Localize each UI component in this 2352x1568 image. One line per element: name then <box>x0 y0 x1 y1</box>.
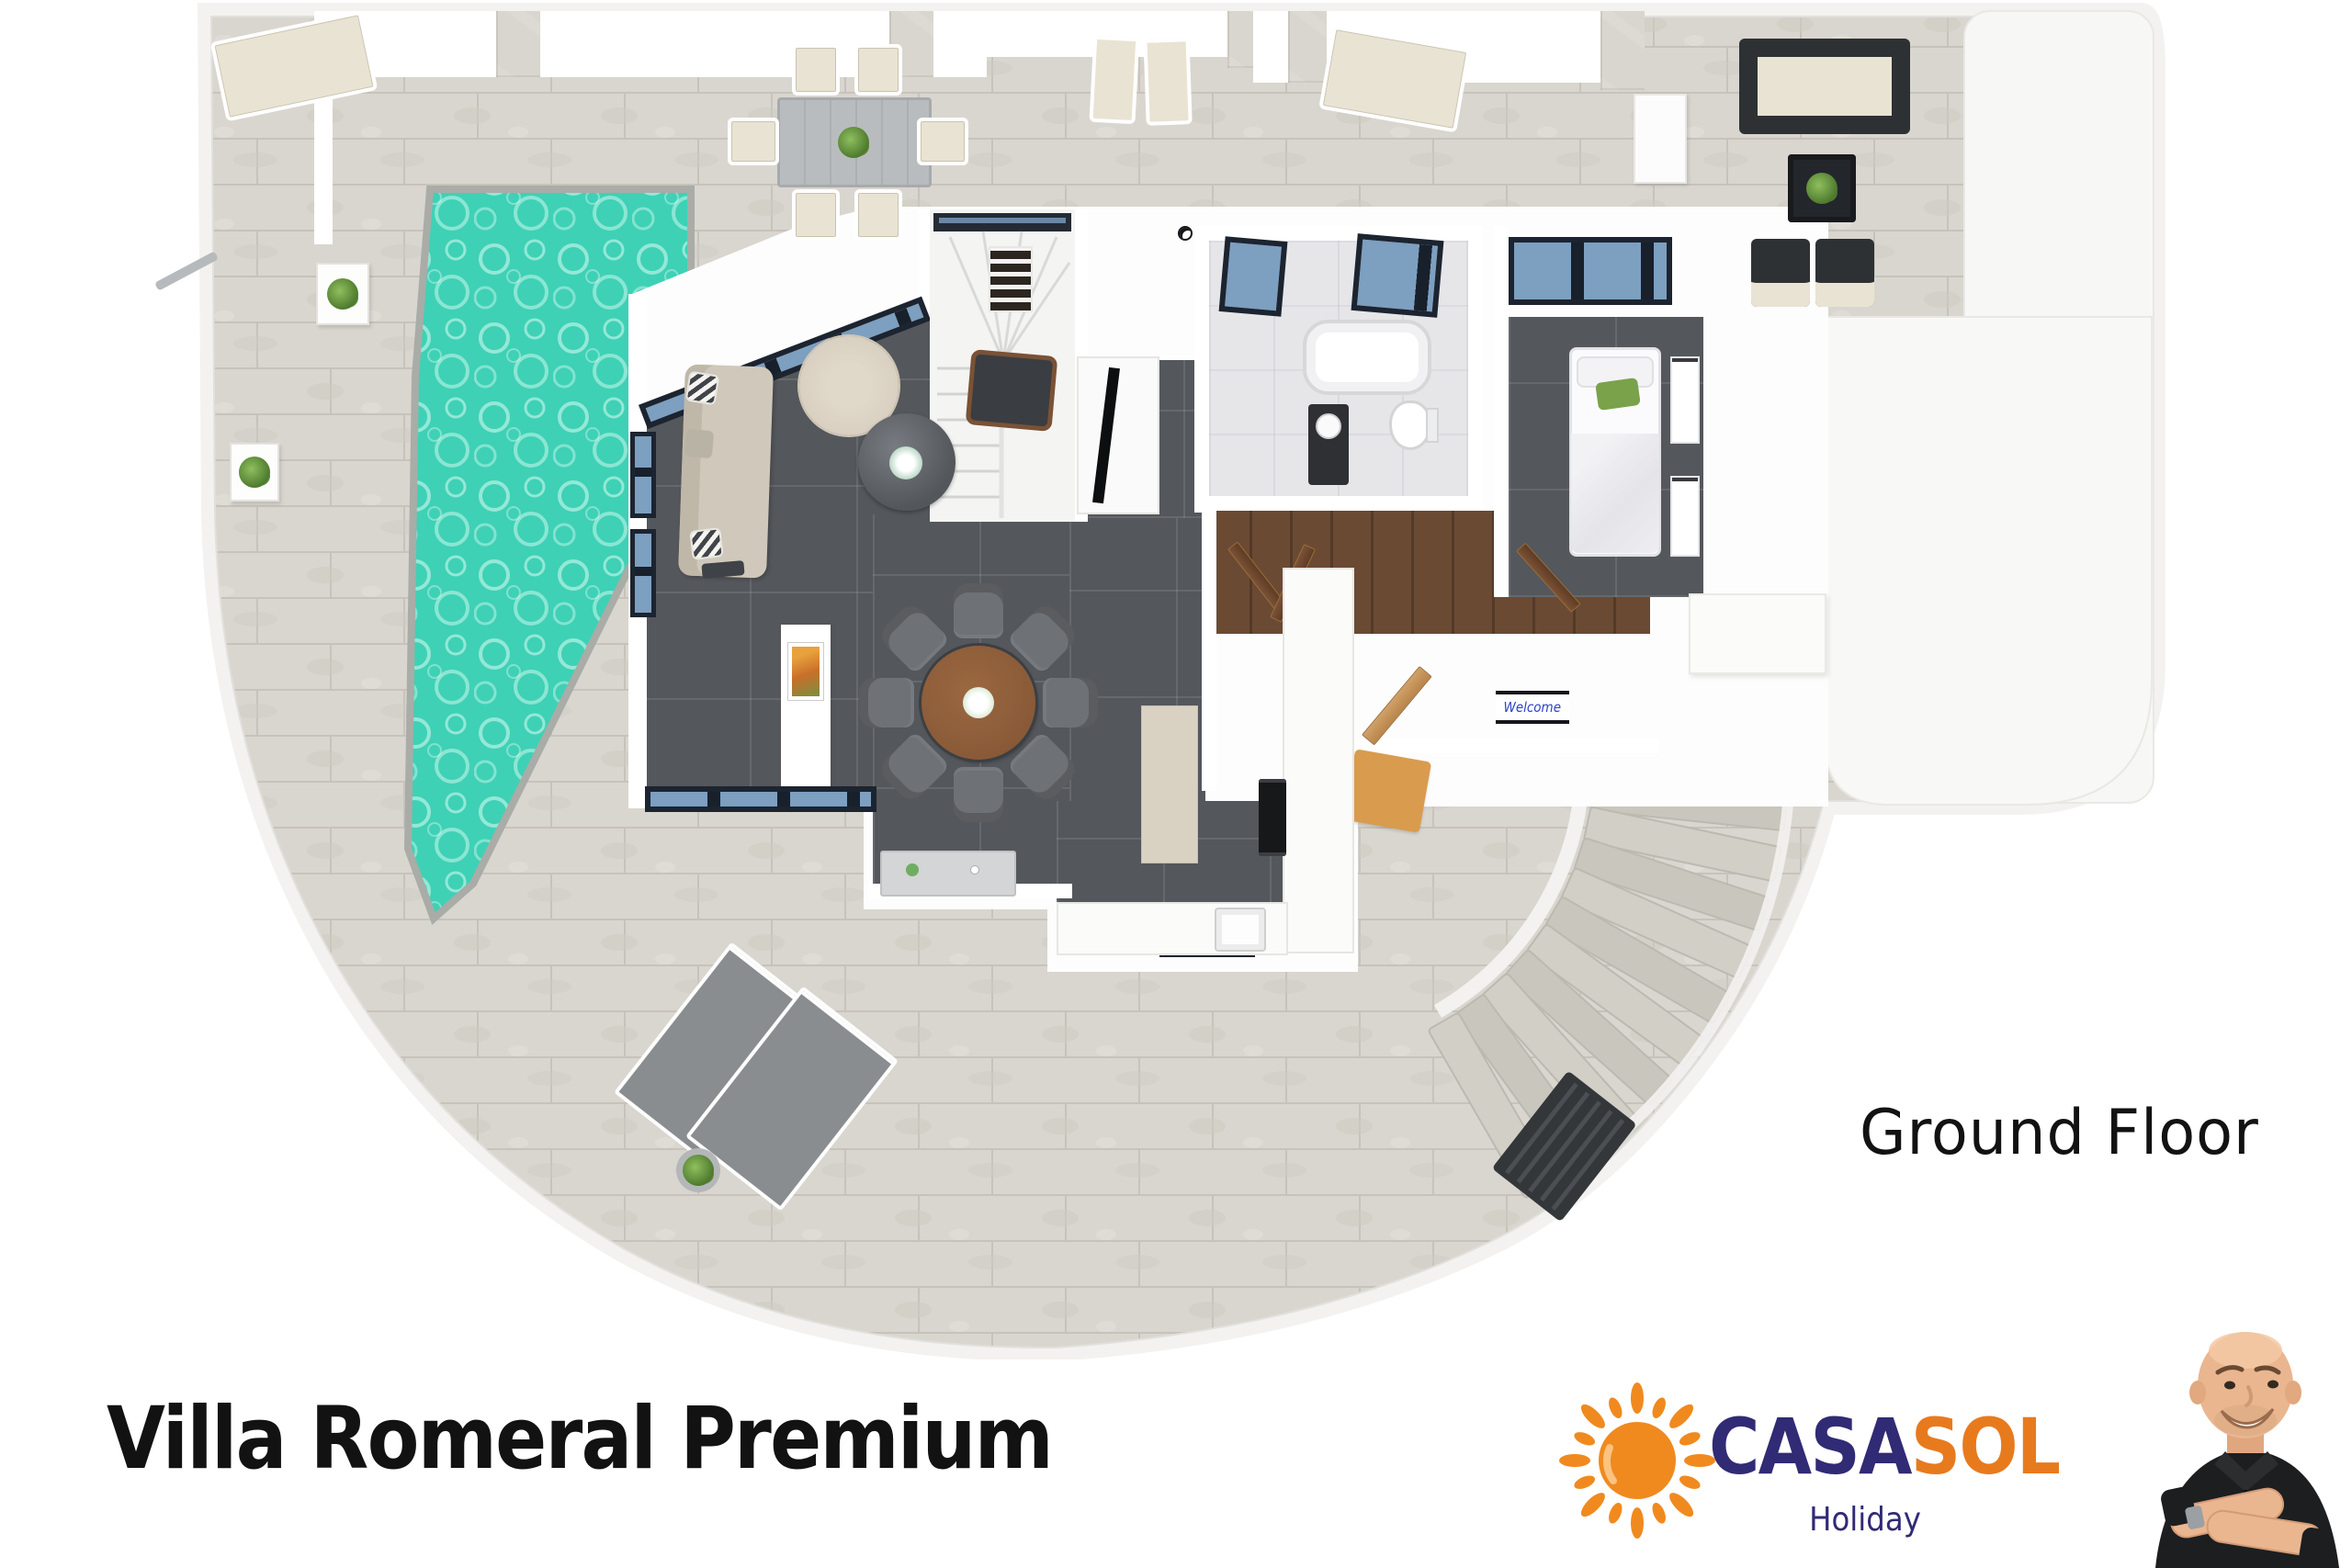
page-title: Villa Romeral Premium <box>107 1389 1052 1489</box>
wine-rack <box>989 246 1033 312</box>
outdoor-chair <box>854 44 902 96</box>
sideboard-decor-white <box>970 865 979 874</box>
vanity-basin <box>1316 413 1341 439</box>
bathtub <box>1303 320 1431 395</box>
folding-chair <box>1089 32 1139 124</box>
soccer-ball-decor <box>1178 226 1193 241</box>
bedroom-west-wall <box>1494 226 1509 597</box>
living-west-window-1 <box>630 432 656 518</box>
brand-word-casa: CASA <box>1709 1402 1911 1492</box>
planter-box-2 <box>230 443 279 502</box>
living-south-sliding-door <box>645 786 876 812</box>
floorplan-page: Welcome <box>0 0 2352 1568</box>
dining-chair <box>1043 678 1098 728</box>
living-west-window-2 <box>630 529 656 617</box>
bathroom-west-wall <box>1194 226 1209 513</box>
outdoor-chair <box>728 118 779 165</box>
cooktop <box>1259 779 1286 856</box>
storage-bench <box>1689 593 1826 674</box>
bathroom-south-wall <box>1205 496 1472 511</box>
wall-artwork <box>788 643 823 700</box>
folding-chair <box>1143 34 1192 126</box>
toilet-cistern <box>1426 408 1439 443</box>
sideboard <box>880 851 1016 897</box>
dining-chair <box>859 678 914 728</box>
brand-wordmark: CASASOL <box>1709 1402 2059 1492</box>
outdoor-side-table <box>1634 94 1687 184</box>
agent-portrait <box>2139 1308 2352 1568</box>
cube-table-plant <box>1806 173 1837 204</box>
kitchen-counter-east <box>1283 568 1354 953</box>
sofa-pillow-3 <box>689 527 724 560</box>
outdoor-chair <box>792 189 840 241</box>
bathroom-skylight-1 <box>1219 236 1288 317</box>
outdoor-chair <box>917 118 968 165</box>
brand-word-sol: SOL <box>1911 1402 2059 1492</box>
floor-label: Ground Floor <box>1860 1097 2259 1169</box>
wall-pillar <box>1288 11 1327 83</box>
brand-logo: CASASOL Holiday <box>1536 1350 2161 1562</box>
coffee-table-decor <box>889 446 922 479</box>
outdoor-sofa <box>1739 39 1910 134</box>
sofa-pillow-2 <box>684 429 715 459</box>
wall-pillar <box>1600 11 1645 90</box>
bedroom-shelf-2 <box>1670 476 1700 557</box>
bedroom-window <box>1509 237 1672 305</box>
outdoor-chair <box>792 44 840 96</box>
dining-chair <box>954 583 1003 638</box>
outdoor-armchair <box>1751 239 1810 307</box>
kitchen-runner-rug <box>1141 705 1198 863</box>
sideboard-decor-green <box>906 863 919 876</box>
outdoor-table-plant <box>838 127 869 158</box>
bathroom-east-wall <box>1468 226 1483 511</box>
lounger-side-table <box>676 1148 720 1192</box>
outdoor-armchair <box>1815 239 1874 307</box>
outdoor-chair <box>854 189 902 241</box>
planter-box-1 <box>316 263 369 325</box>
welcome-mat: Welcome <box>1496 691 1569 724</box>
wood-armchair <box>966 349 1058 432</box>
dining-table-vase <box>963 687 994 718</box>
kitchen-sink <box>1215 908 1266 952</box>
sun-icon <box>1536 1372 1738 1556</box>
bedroom-shelf-1 <box>1670 356 1700 444</box>
green-accent-pillow <box>1595 378 1641 411</box>
dining-east-wall <box>1202 511 1216 791</box>
front-doormat <box>1343 749 1431 832</box>
brand-tagline: Holiday <box>1782 1501 1948 1539</box>
bed-duvet <box>1571 434 1659 553</box>
entry-south-wall <box>1343 739 1659 753</box>
sofa-pillow-1 <box>685 371 720 406</box>
welcome-mat-text: Welcome <box>1504 699 1562 716</box>
wall-pillar <box>496 11 540 77</box>
dining-chair <box>954 767 1003 822</box>
bathroom-skylight-2 <box>1351 233 1444 318</box>
